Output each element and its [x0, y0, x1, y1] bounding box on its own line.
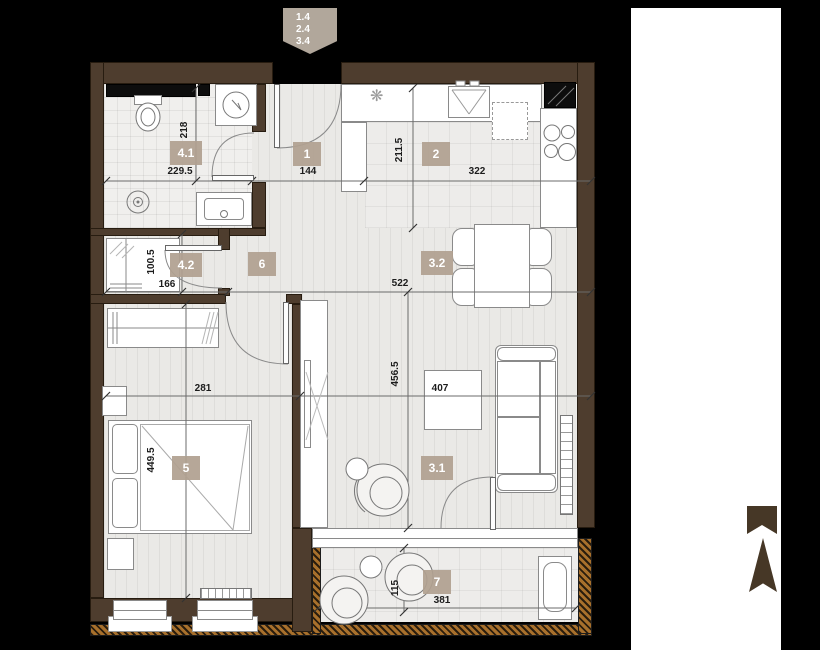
bed-pillow-bottom [112, 478, 138, 528]
dim-kitchen-width: 322 [455, 166, 499, 178]
closet-door-leaf [165, 245, 222, 251]
dining-chair-br [528, 268, 552, 306]
planter-inner [543, 562, 567, 612]
bathroom-door-leaf [212, 175, 254, 181]
kitchen-tall-cabinet [341, 122, 367, 192]
room-badge-hall: 1 [293, 142, 321, 166]
kitchen-counter-right [540, 108, 577, 228]
sofa-seat-2 [497, 417, 540, 474]
wall-top-right [341, 62, 595, 84]
dim-closet-width: 166 [145, 279, 189, 291]
wall-right [577, 62, 595, 528]
balcony-door-leaf [490, 477, 496, 530]
radiator-living [560, 415, 573, 515]
dim-balcony-width: 381 [420, 595, 464, 607]
coffee-table [424, 370, 482, 430]
entrance-door-leaf [274, 84, 280, 148]
washing-machine [215, 84, 257, 126]
nightstand-bottom [107, 538, 134, 570]
tv [304, 360, 311, 448]
exterior-hatch-balcony-left [312, 538, 321, 634]
room-badge-bathroom: 4.1 [170, 141, 202, 165]
room-badge-bedroom: 5 [172, 456, 200, 480]
dim-closet-height: 100.5 [146, 240, 158, 284]
dim-balcony-height: 115 [390, 566, 402, 610]
dining-table [474, 224, 530, 308]
bed-pillow-top [112, 424, 138, 474]
radiator-bedroom [200, 588, 252, 599]
dim-bedroom-width: 281 [181, 383, 225, 395]
sofa-back [540, 361, 556, 474]
room-badge-living: 3.1 [421, 456, 453, 480]
room-badge-kitchen: 2 [422, 142, 450, 166]
level-tag-line-2: 2.4 [296, 24, 337, 36]
sofa-armrest-bottom [497, 474, 556, 491]
exterior-hatch-balcony-right [578, 538, 592, 634]
dining-chair-tr [528, 228, 552, 266]
dining-chair-bl [452, 268, 476, 306]
room-badge-closet: 4.2 [170, 253, 202, 277]
room-badge-dining: 3.2 [421, 251, 453, 275]
dishwasher [492, 102, 528, 140]
sofa-seat-1 [497, 361, 540, 417]
window-bedroom-right [197, 600, 253, 620]
dim-kitchen-height: 211.5 [394, 128, 406, 172]
wall-bathroom-right-lower [252, 182, 266, 228]
dim-bathroom-width: 229.5 [158, 166, 202, 178]
wall-bedroom-top [90, 294, 226, 304]
dim-bedroom-height: 449.5 [146, 438, 158, 482]
shaft-kitchen [544, 82, 576, 108]
sofa-armrest-top [497, 347, 556, 361]
wall-top-left [90, 62, 273, 84]
wall-bathroom-bottom [90, 228, 266, 236]
shaft-bathroom [198, 84, 210, 96]
kitchen-sink [448, 86, 490, 118]
balcony-door-band [312, 528, 578, 548]
window-bedroom-left [113, 600, 167, 620]
level-tag-line-1: 1.4 [296, 12, 337, 24]
wall-balcony-pillar [292, 528, 312, 632]
vent-symbol-icon: ❋ [370, 86, 383, 106]
vanity-sink [204, 198, 244, 220]
wall-left [90, 62, 104, 598]
sidebar-panel [631, 8, 781, 650]
dim-living-height: 456.5 [390, 352, 402, 396]
wardrobe-bedroom [107, 308, 219, 348]
dim-living-width-inner: 407 [418, 383, 462, 395]
toilet-tank [134, 95, 162, 105]
dim-hall-width: 144 [286, 166, 330, 178]
bedroom-door-leaf [283, 302, 289, 364]
room-badge-balcony: 7 [423, 570, 451, 594]
dining-chair-tl [452, 228, 476, 266]
level-tag-line-3: 3.4 [296, 36, 337, 48]
dim-living-width: 522 [378, 278, 422, 290]
room-badge-corridor: 6 [248, 252, 276, 276]
nightstand-top [102, 386, 127, 416]
level-tag[interactable]: 1.4 2.4 3.4 [283, 8, 337, 54]
